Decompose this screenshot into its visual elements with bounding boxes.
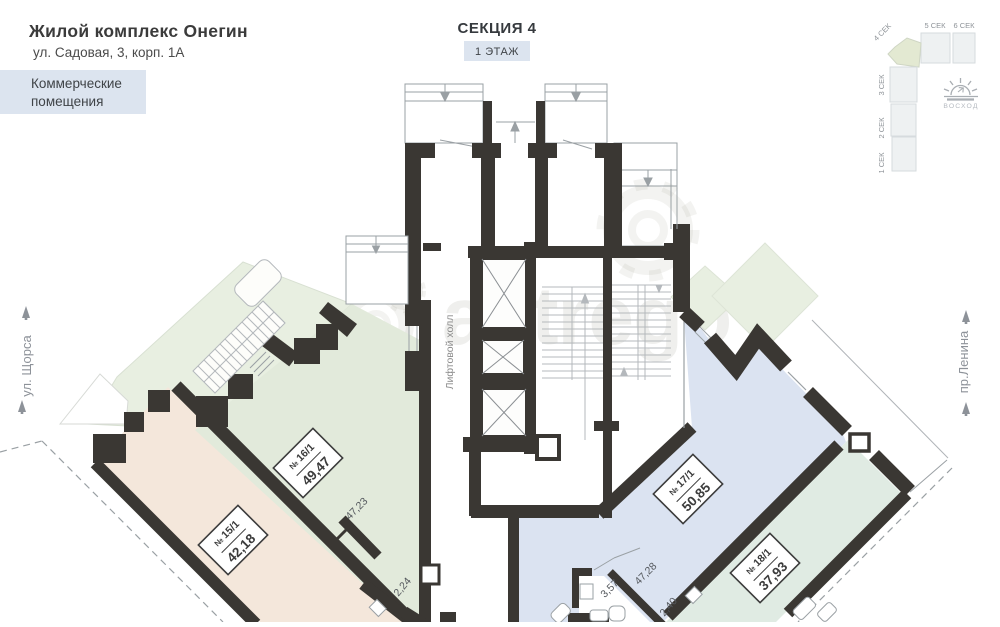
svg-text:Лифтовой холл: Лифтовой холл (444, 315, 456, 390)
svg-text:1 ЭТАЖ: 1 ЭТАЖ (475, 46, 519, 58)
svg-text:3 СЕК: 3 СЕК (877, 74, 886, 96)
svg-text:помещения: помещения (31, 94, 103, 109)
svg-text:2 СЕК: 2 СЕК (877, 117, 886, 139)
svg-text:Коммерческие: Коммерческие (31, 76, 122, 91)
svg-text:ул. Щорса: ул. Щорса (19, 335, 34, 397)
svg-text:5 СЕК: 5 СЕК (924, 21, 946, 30)
svg-text:Жилой комплекс Онегин: Жилой комплекс Онегин (28, 21, 248, 41)
svg-text:1 СЕК: 1 СЕК (877, 152, 886, 174)
svg-text:6 СЕК: 6 СЕК (953, 21, 975, 30)
svg-text:ВОСХОД: ВОСХОД (943, 103, 978, 110)
svg-text:ул. Садовая, 3, корп. 1А: ул. Садовая, 3, корп. 1А (33, 45, 184, 60)
svg-text:пр.Ленина: пр.Ленина (956, 330, 971, 393)
svg-text:СЕКЦИЯ 4: СЕКЦИЯ 4 (457, 20, 536, 37)
